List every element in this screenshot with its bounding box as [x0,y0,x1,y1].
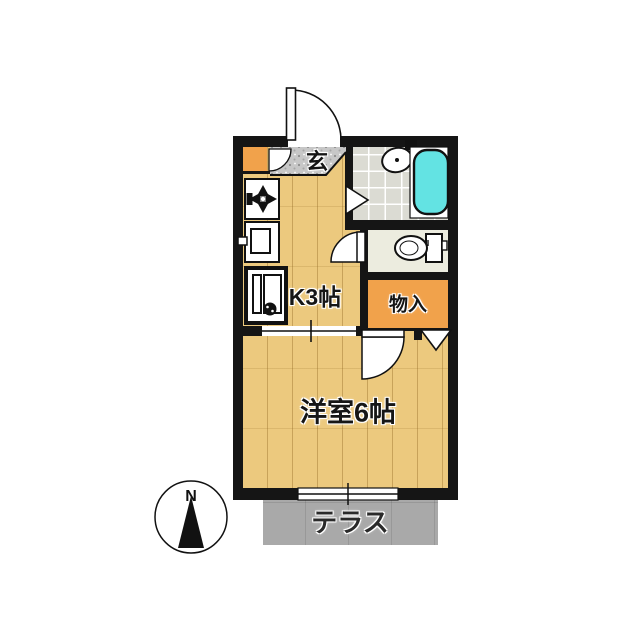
north-compass-icon: N [155,481,227,553]
storage-label: 物入 [389,290,427,317]
shoe-cabinet-base-line [243,171,274,174]
kitchen-room-divider-wall [243,326,360,336]
storage-threshold [368,328,448,331]
storage-door-stub [414,328,422,340]
shoe-cabinet [243,147,267,171]
toilet-room-floor [368,230,448,272]
kitchen-label: K3帖 [289,278,341,312]
bathroom-left-wall [345,147,353,230]
outer-wall-right [448,136,458,500]
floor-plan-canvas: N 玄 K3帖 物入 洋室6帖 テラス [0,0,640,640]
outer-wall-bottom [233,488,458,500]
outer-wall-left [233,136,243,500]
toilet-bottom-wall [360,272,448,280]
western-room-label: 洋室6帖 [300,391,396,430]
entrance-door-swing-icon [287,88,342,147]
outer-wall-top-right [340,136,458,147]
entrance-label: 玄 [306,144,328,176]
bathroom-floor [353,147,448,220]
terrace-label: テラス [311,503,388,540]
compass-north-label: N [185,488,197,505]
